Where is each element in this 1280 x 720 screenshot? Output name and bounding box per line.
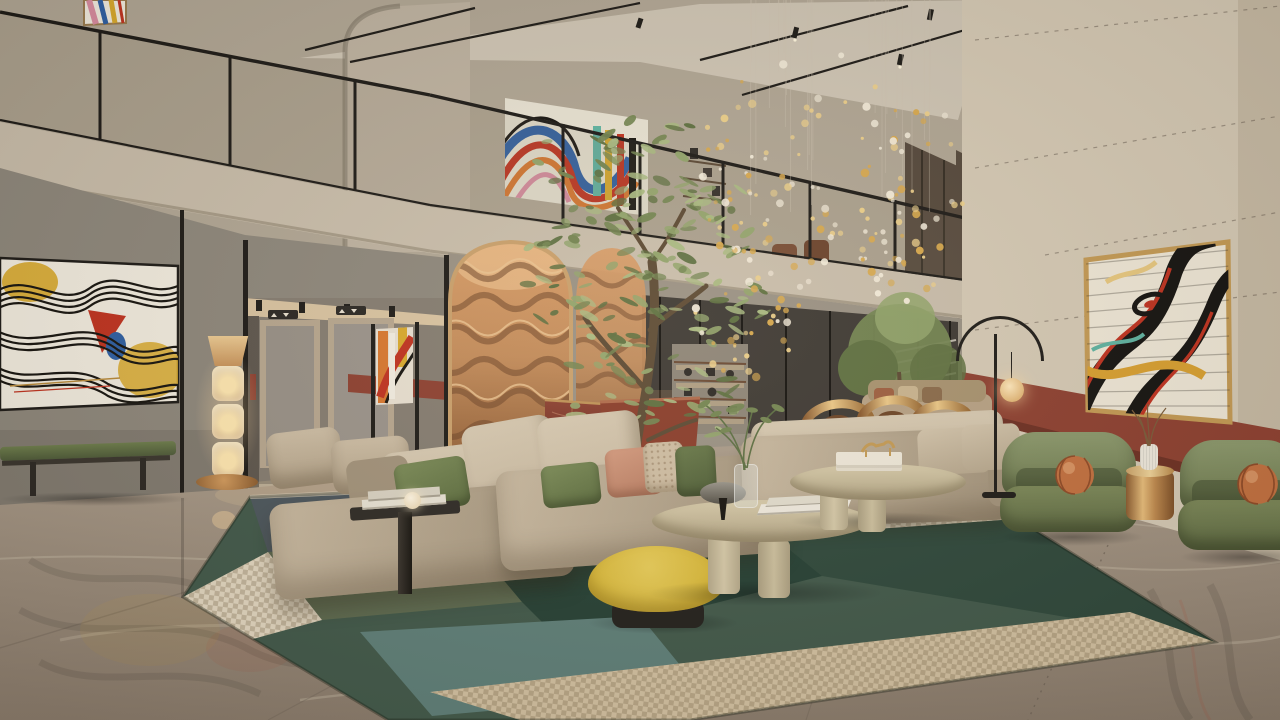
bench-leg — [140, 458, 146, 490]
olive-leaf-clump — [627, 171, 649, 181]
olive-leaf-clump — [534, 273, 553, 285]
olive-leaf-clump — [704, 431, 723, 439]
olive-leaf-clump — [651, 133, 669, 147]
olive-leaf-clump — [636, 210, 658, 225]
olive-leaf-clump — [578, 282, 593, 289]
olive-leaf-clump — [549, 309, 559, 317]
olive-leaf-clump — [726, 205, 736, 215]
green-armchair — [1180, 436, 1280, 560]
olive-leaf-clump — [531, 158, 544, 167]
arc-lamp-globe — [1000, 378, 1024, 402]
olive-leaf-clump — [541, 139, 553, 145]
olive-leaf-clump — [704, 324, 722, 336]
olive-leaf-clump — [631, 293, 650, 310]
book-stack — [836, 452, 902, 465]
floor-lamp-base — [196, 474, 258, 490]
pumpkin-pillow — [1236, 462, 1280, 506]
coffee-table-leg — [708, 534, 740, 594]
olive-leaf-clump — [622, 113, 638, 128]
floor-lamp-glass-segment — [212, 366, 244, 401]
olive-leaf-clump — [715, 231, 730, 239]
floor-lamp-glass-segment — [212, 442, 244, 477]
armchair-seat — [1178, 500, 1280, 550]
olive-leaf-clump — [667, 353, 680, 361]
olive-leaf-clump — [548, 283, 560, 289]
olive-leaf-clump — [522, 242, 535, 253]
olive-leaf-clump — [628, 187, 646, 200]
olive-leaf-clump — [647, 194, 659, 204]
olive-leaf-clump — [597, 300, 608, 309]
olive-leaf-clump — [613, 184, 629, 196]
side-table-leg — [398, 512, 412, 594]
arc-lamp-cord — [1011, 352, 1012, 380]
olive-leaf-clump — [673, 149, 690, 164]
olive-leaf-clump — [705, 337, 719, 349]
olive-leaf-clump — [549, 264, 566, 270]
olive-leaf-clump — [683, 122, 696, 129]
pumpkin-pillow — [1054, 454, 1096, 496]
olive-leaf-clump — [712, 277, 724, 288]
olive-leaf-clump — [738, 225, 756, 240]
olive-leaf-clump — [567, 203, 580, 214]
sofa-pillow-green — [540, 461, 602, 509]
olive-leaf-clump — [616, 245, 636, 258]
olive-leaf-clump — [520, 280, 537, 287]
arc-lamp-stem — [994, 334, 997, 496]
coffee-table-top — [790, 464, 966, 500]
olive-leaf-clump — [673, 181, 690, 189]
olive-leaf-clump — [694, 313, 710, 323]
olive-leaf-clump — [665, 237, 686, 253]
olive-leaf-clump — [757, 309, 769, 316]
olive-leaf-clump — [709, 297, 729, 304]
gold-side-table — [1126, 470, 1174, 520]
olive-leaf-clump — [651, 173, 671, 188]
green-armchair — [1002, 428, 1136, 540]
olive-leaf-clump — [661, 194, 675, 205]
olive-leaf-clump — [532, 312, 550, 326]
glass-vase — [734, 464, 758, 508]
olive-leaf-clump — [573, 270, 586, 279]
tree-foliage — [520, 113, 772, 442]
olive-leaf-clump — [727, 323, 745, 337]
olive-leaf-clump — [625, 332, 641, 340]
olive-leaf-clump — [647, 187, 659, 196]
olive-leaf-clump — [699, 184, 717, 194]
bench-leg — [30, 462, 36, 496]
olive-leaf-clump — [728, 314, 740, 324]
olive-leaf-clump — [563, 360, 585, 370]
olive-leaf-clump — [733, 183, 748, 196]
olive-leaf-clump — [677, 386, 691, 392]
olive-leaf-clump — [630, 150, 645, 157]
olive-leaf-clump — [602, 314, 616, 323]
sphere-table-lamp — [404, 492, 421, 509]
olive-leaf-clump — [630, 343, 650, 348]
olive-leaf-clump — [716, 375, 738, 382]
olive-leaf-clump — [605, 260, 620, 272]
white-ribbed-vase — [1140, 444, 1158, 470]
olive-leaf-clump — [604, 391, 617, 400]
olive-leaf-clump — [592, 360, 604, 370]
olive-leaf-clump — [585, 214, 599, 226]
olive-leaf-clump — [657, 286, 669, 292]
floor-lamp-glass-segment — [212, 404, 244, 439]
coffee-table-leg — [758, 540, 790, 598]
olive-leaf-clump — [714, 425, 724, 433]
olive-leaf-clump — [693, 365, 710, 378]
lobby-scene — [0, 0, 1280, 720]
arc-lamp-base — [982, 492, 1016, 498]
bench-shadow — [0, 492, 190, 506]
olive-leaf-clump — [731, 244, 751, 257]
olive-leaf-clump — [570, 402, 581, 409]
olive-leaf-clump — [548, 177, 562, 185]
